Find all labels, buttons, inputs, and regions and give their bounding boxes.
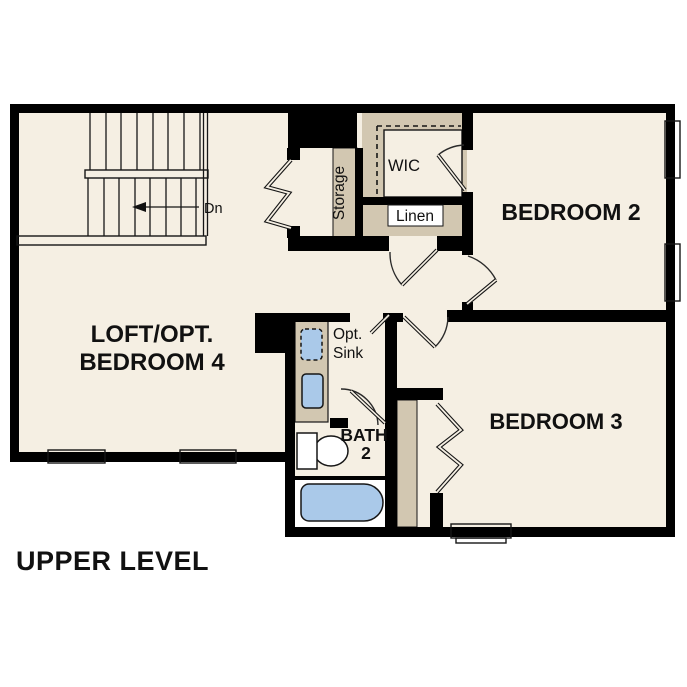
wall-hall-north-west	[288, 236, 389, 251]
wall-closet-top	[397, 388, 443, 400]
linen-label-box: Linen	[396, 208, 434, 225]
bath2-label-line2: 2	[361, 443, 371, 463]
tub-alcove-divider	[294, 476, 386, 480]
toilet-tank	[297, 433, 317, 469]
wall-bedroom-divider	[447, 310, 666, 322]
optional-sink-label-line2: Sink	[333, 345, 363, 362]
wall-chase-above-storage	[288, 108, 357, 148]
plan-title: UPPER LEVEL	[16, 546, 209, 576]
loft-label-line1: LOFT/OPT.	[91, 321, 214, 348]
wall-wic-bottom	[357, 197, 467, 205]
stair-direction-label: Dn	[204, 201, 223, 217]
floor-plan-drawing: Dn	[0, 0, 687, 687]
bedroom3-label: BEDROOM 3	[489, 409, 622, 434]
bedroom3-window-sill	[456, 538, 506, 543]
wic-label: WIC	[388, 157, 420, 175]
wall-hall-south-bar	[295, 313, 350, 322]
wall-bottom	[285, 527, 675, 537]
floor-plan-page: Dn	[0, 0, 687, 687]
wall-bifold-stub-top	[287, 148, 300, 160]
optional-sink	[301, 329, 322, 360]
wall-right	[666, 104, 675, 537]
bathtub	[301, 484, 383, 521]
wall-east-seg2	[462, 192, 473, 255]
optional-sink-label-line1: Opt.	[333, 326, 362, 343]
bedroom3-closet-shelf	[397, 400, 417, 527]
wall-left	[10, 104, 19, 462]
wall-loft-bottom	[10, 452, 295, 462]
wall-chase-block	[255, 313, 295, 353]
bedroom2-label: BEDROOM 2	[501, 199, 640, 225]
bath2-label-line1: BATH	[340, 425, 387, 445]
sink	[302, 374, 323, 408]
loft-label-line2: BEDROOM 4	[79, 349, 225, 376]
wall-closet-bottom-stub	[430, 493, 443, 527]
wall-east-seg1	[462, 110, 473, 150]
storage-label: Storage	[331, 166, 348, 220]
